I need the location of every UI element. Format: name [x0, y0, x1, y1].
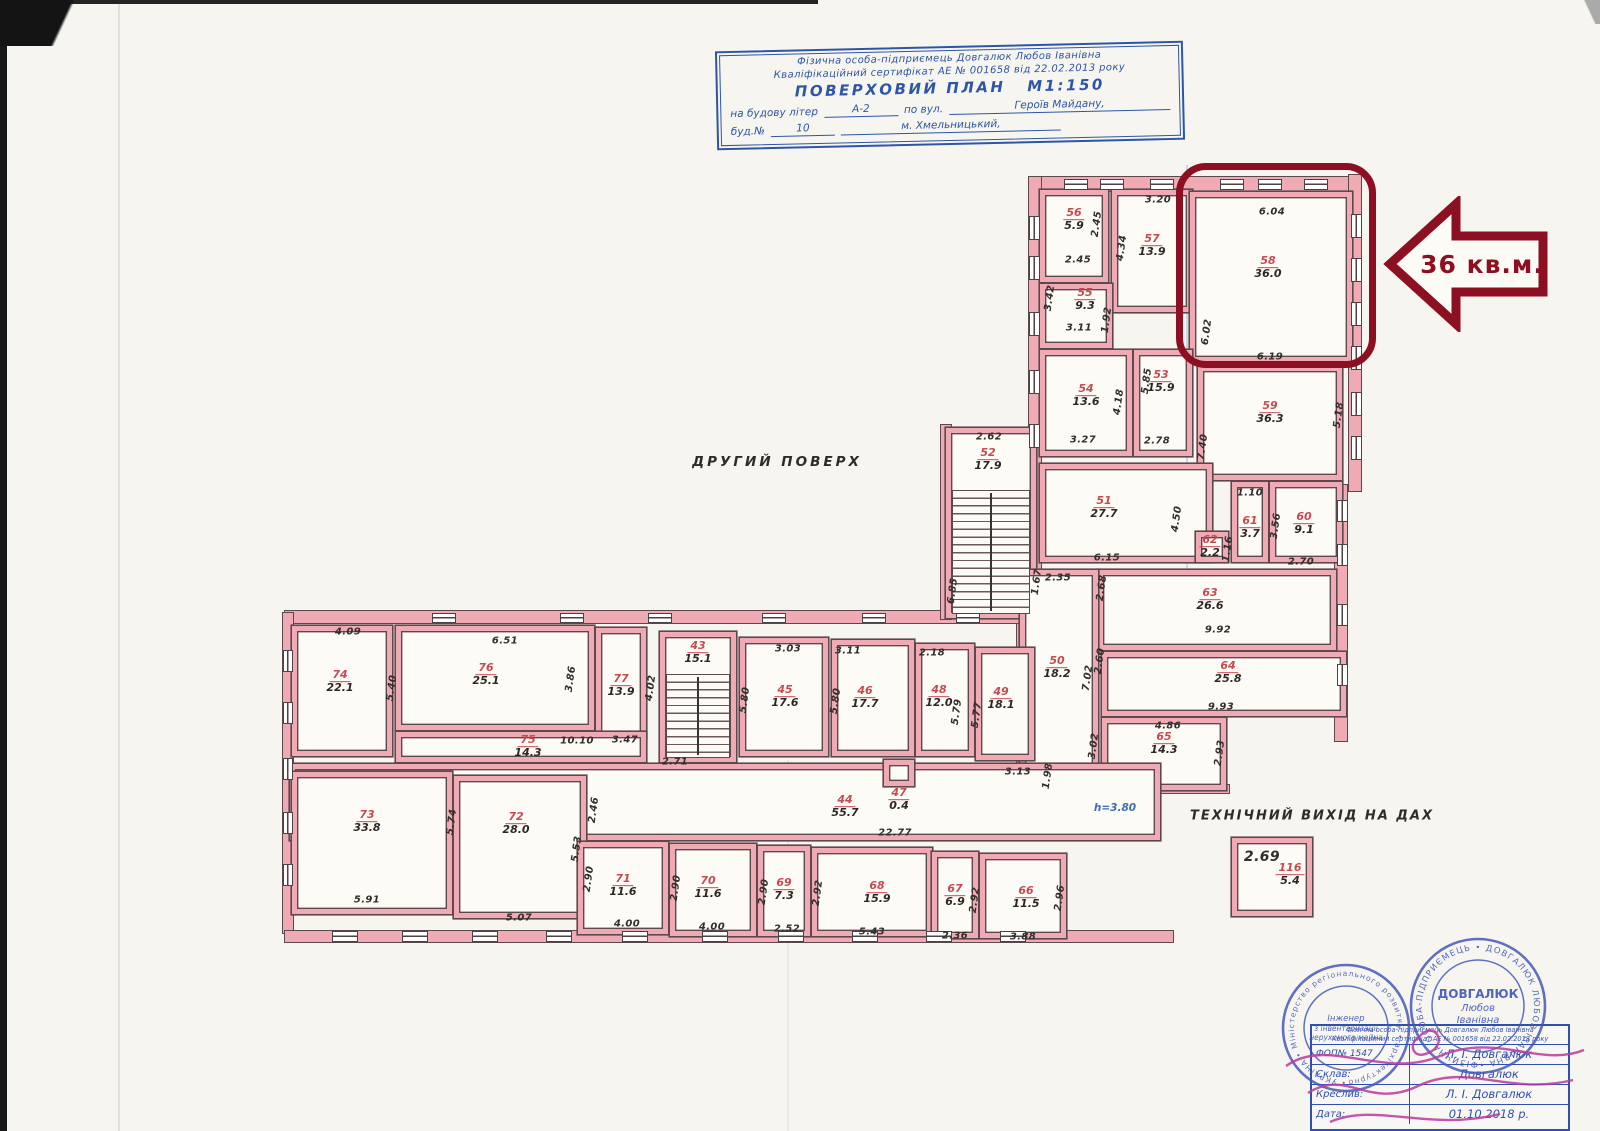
date-value: 01.10.2018 р. [1409, 1105, 1568, 1124]
window-opening [762, 613, 786, 623]
window-opening [1351, 392, 1362, 416]
room-area: 0.4 [888, 801, 909, 813]
room-label-75: 7514.3 [514, 734, 541, 760]
room-label-74: 7422.1 [326, 669, 353, 695]
room-number: 63 [1199, 587, 1220, 600]
dimension-text: 4.02 [644, 674, 659, 702]
room-number: 45 [774, 684, 795, 697]
dimension-text: 9.93 [1208, 702, 1234, 713]
dimension-text: 5.18 [1332, 401, 1347, 429]
signature-row-date: Дата: 01.10.2018 р. [1312, 1104, 1568, 1124]
dimension-text: 2.69 [1244, 849, 1280, 865]
room-number: 52 [977, 447, 998, 460]
window-opening [283, 702, 293, 724]
room-label-68: 6815.9 [863, 880, 890, 906]
room-number: 56 [1063, 207, 1084, 220]
window-opening [1064, 179, 1088, 190]
room-label-62: 622.2 [1199, 534, 1220, 560]
signature-row-compiled: Склав: Довгалюк [1312, 1064, 1568, 1084]
room-number: 70 [697, 875, 718, 888]
room-area: 5.4 [1276, 876, 1305, 888]
room-label-55: 559.3 [1074, 287, 1095, 313]
dimension-text: 3.27 [1070, 435, 1096, 446]
room-area: 15.9 [863, 894, 890, 906]
dimension-text: 5.43 [859, 927, 885, 938]
signature-table: Фізична особа-підприємець Довгалюк Любов… [1310, 1024, 1570, 1131]
room-number: 77 [610, 673, 631, 686]
window-opening [1351, 436, 1362, 460]
scanned-page: Фізична особа-підприємець Довгалюк Любов… [0, 0, 1600, 1131]
room-label-69: 697.3 [773, 877, 794, 903]
dimension-text: 2.45 [1065, 255, 1091, 266]
room-label-50: 5018.2 [1043, 655, 1070, 681]
room-area: 5.9 [1063, 221, 1084, 233]
staircase [666, 674, 730, 758]
room-area: 11.5 [1012, 899, 1039, 911]
room-area: 13.9 [607, 687, 634, 699]
room-number: 71 [612, 873, 633, 886]
window-opening [546, 931, 572, 942]
dimension-text: 2.78 [1144, 436, 1170, 447]
window-opening [1337, 500, 1348, 522]
room-area: 12.0 [925, 698, 952, 710]
window-opening [1100, 179, 1124, 190]
window-opening [402, 931, 428, 942]
room-label-51: 5127.7 [1090, 495, 1117, 521]
room-area: 9.3 [1074, 301, 1095, 313]
room-label-54: 5413.6 [1072, 383, 1099, 409]
window-opening [1029, 312, 1040, 336]
fop-number-label: ФОП№ 1547 [1312, 1049, 1409, 1059]
room-area: 17.6 [771, 698, 798, 710]
window-opening [702, 931, 728, 942]
dimension-text: 2.70 [1288, 557, 1314, 568]
window-opening [1337, 544, 1348, 566]
dimension-text: 2.71 [662, 757, 688, 768]
window-opening [283, 650, 293, 672]
staircase [952, 490, 1030, 614]
room-label-67: 676.9 [944, 883, 965, 909]
room-number: 76 [475, 662, 496, 675]
room-number: 72 [505, 811, 526, 824]
height-note: h=3.80 [1094, 802, 1136, 814]
dimension-text: 9.92 [1205, 625, 1231, 636]
dimension-text: 22.77 [878, 828, 912, 839]
dimension-text: 6.51 [492, 636, 518, 647]
room-label-73: 7333.8 [353, 809, 380, 835]
dimension-text: 2.18 [919, 648, 945, 659]
dimension-text: 3.20 [1145, 195, 1171, 206]
room-number: 73 [356, 809, 377, 822]
room-number: 44 [834, 794, 855, 807]
dimension-text: 2.52 [774, 924, 800, 935]
room-number: 59 [1259, 400, 1280, 413]
window-opening [862, 613, 886, 623]
fop-signature-name: Л. І. Довгалюк [1409, 1045, 1568, 1064]
floor-name-label: ДРУГИЙ ПОВЕРХ [692, 454, 862, 470]
room-number: 66 [1015, 885, 1036, 898]
room-area: 33.8 [353, 823, 380, 835]
room-label-61: 613.7 [1239, 515, 1260, 541]
room-label-57: 5713.9 [1138, 233, 1165, 259]
room-51 [1040, 464, 1212, 562]
room-label-77: 7713.9 [607, 673, 634, 699]
dimension-text: 5.07 [506, 913, 532, 924]
dimension-text: 10.10 [560, 736, 594, 747]
room-area: 36.3 [1256, 414, 1283, 426]
room-label-45: 4517.6 [771, 684, 798, 710]
window-opening [1337, 604, 1348, 626]
room-area: 13.6 [1072, 397, 1099, 409]
window-opening [1029, 216, 1040, 240]
room-number: 75 [517, 734, 538, 747]
room-area: 28.0 [502, 825, 529, 837]
signature-table-header2: Кваліфікаційний сертифікат АЕ № 001658 в… [1312, 1035, 1568, 1044]
room-area: 22.1 [326, 683, 353, 695]
date-label: Дата: [1312, 1109, 1409, 1120]
room-area: 25.8 [1214, 674, 1241, 686]
dimension-text: 3.02 [1087, 732, 1102, 760]
room-area: 2.2 [1199, 548, 1220, 560]
dimension-text: 3.11 [835, 646, 861, 657]
dimension-text: 2.36 [942, 931, 968, 942]
dimension-text: 5.91 [354, 895, 380, 906]
dimension-text: 1.92 [1100, 306, 1115, 334]
room-label-44: 4455.7 [831, 794, 858, 820]
dimension-text: 3.88 [1010, 932, 1036, 943]
room-label-72: 7228.0 [502, 811, 529, 837]
dimension-text: 3.47 [612, 735, 638, 746]
dimension-text: 6.15 [1094, 553, 1120, 564]
room-label-48: 4812.0 [925, 684, 952, 710]
window-opening [472, 931, 498, 942]
room-label-63: 6326.6 [1196, 587, 1223, 613]
dimension-text: 2.62 [976, 432, 1002, 443]
room-number: 61 [1239, 515, 1260, 528]
room-number: 57 [1141, 233, 1162, 246]
room-label-49: 4918.1 [987, 686, 1014, 712]
window-opening [1029, 370, 1040, 394]
room-number: 46 [854, 685, 875, 698]
room-area: 18.2 [1043, 669, 1070, 681]
signature-table-header1: Фізична особа-підприємець Довгалюк Любов… [1312, 1026, 1568, 1035]
room-area: 7.3 [773, 891, 794, 903]
room-number: 60 [1293, 511, 1314, 524]
room-label-46: 4617.7 [851, 685, 878, 711]
window-opening [648, 613, 672, 623]
room-area: 18.1 [987, 700, 1014, 712]
room-47 [884, 760, 914, 786]
signature-row-fop: ФОП№ 1547 Л. І. Довгалюк [1312, 1044, 1568, 1064]
room-label-43: 4315.1 [684, 640, 711, 666]
room-number: 62 [1199, 534, 1220, 547]
room-label-76: 7625.1 [472, 662, 499, 688]
compiled-by-label: Склав: [1312, 1069, 1409, 1080]
room-area: 17.7 [851, 699, 878, 711]
window-opening [956, 613, 980, 623]
room-number: 49 [990, 686, 1011, 699]
signature-row-drawn: Креслив: Л. І. Довгалюк [1312, 1084, 1568, 1104]
room-label-52: 5217.9 [974, 447, 1001, 473]
dimension-text: 4.86 [1155, 721, 1181, 732]
room-area: 55.7 [831, 808, 858, 820]
dimension-text: 4.09 [335, 627, 361, 638]
room-number: 64 [1217, 660, 1238, 673]
room-area: 14.3 [1150, 745, 1177, 757]
dimension-text: 3.11 [1066, 323, 1092, 334]
room-number: 48 [928, 684, 949, 697]
room-number: 65 [1153, 731, 1174, 744]
window-opening [560, 613, 584, 623]
dimension-text: 3.03 [775, 644, 801, 655]
window-opening [1337, 664, 1348, 686]
scanned-floor-plan-document: { "colors":{"wall_pink":"#efaab3","wall_… [0, 0, 1600, 1131]
room-label-59: 5936.3 [1256, 400, 1283, 426]
window-opening [283, 864, 293, 886]
dimension-text: 4.00 [614, 919, 640, 930]
tech-exit-label: ТЕХНІЧНИЙ ВИХІД НА ДАХ [1190, 809, 1434, 824]
room-number: 47 [888, 787, 909, 800]
room-label-64: 6425.8 [1214, 660, 1241, 686]
window-opening [283, 812, 293, 834]
room-number: 67 [944, 883, 965, 896]
room-label-60: 609.1 [1293, 511, 1314, 537]
drawn-by-label: Креслив: [1312, 1089, 1409, 1100]
room-72 [454, 776, 586, 918]
room-area: 14.3 [514, 748, 541, 760]
room-area: 6.9 [944, 897, 965, 909]
room-number: 55 [1074, 287, 1095, 300]
window-opening [1150, 179, 1174, 190]
room-73 [292, 772, 452, 914]
room-number: 69 [773, 877, 794, 890]
room-number: 51 [1093, 495, 1114, 508]
dimension-text: 4.00 [699, 922, 725, 933]
room-label-65: 6514.3 [1150, 731, 1177, 757]
room-area: 17.9 [974, 461, 1001, 473]
room-number: 54 [1075, 383, 1096, 396]
room-area: 25.1 [472, 676, 499, 688]
room-label-116: 1165.4 [1276, 862, 1305, 888]
dimension-text: 1.10 [1237, 488, 1263, 499]
window-opening [1029, 424, 1040, 448]
compiled-by-name: Довгалюк [1409, 1065, 1568, 1084]
room-area: 11.6 [694, 889, 721, 901]
drawn-by-name: Л. І. Довгалюк [1409, 1085, 1568, 1104]
room-label-70: 7011.6 [694, 875, 721, 901]
room-number: 68 [866, 880, 887, 893]
dimension-text: 2.35 [1045, 573, 1071, 584]
room-number: 74 [329, 669, 350, 682]
room-number: 50 [1046, 655, 1067, 668]
window-opening [1029, 256, 1040, 280]
window-opening [283, 758, 293, 780]
room-area: 27.7 [1090, 509, 1117, 521]
room-label-66: 6611.5 [1012, 885, 1039, 911]
room-area: 26.6 [1196, 601, 1223, 613]
highlighted-room-outline [1176, 163, 1376, 368]
window-opening [622, 931, 648, 942]
room-area: 3.7 [1239, 529, 1260, 541]
room-label-47: 470.4 [888, 787, 909, 813]
room-area: 9.1 [1293, 525, 1314, 537]
callout-area-text: 36 кв.м. [1418, 250, 1546, 279]
room-area: 15.1 [684, 654, 711, 666]
room-label-71: 7111.6 [609, 873, 636, 899]
room-number: 43 [687, 640, 708, 653]
room-area: 13.9 [1138, 247, 1165, 259]
window-opening [332, 931, 358, 942]
room-label-56: 565.9 [1063, 207, 1084, 233]
window-opening [432, 613, 456, 623]
dimension-text: 3.13 [1005, 767, 1031, 778]
room-area: 11.6 [609, 887, 636, 899]
